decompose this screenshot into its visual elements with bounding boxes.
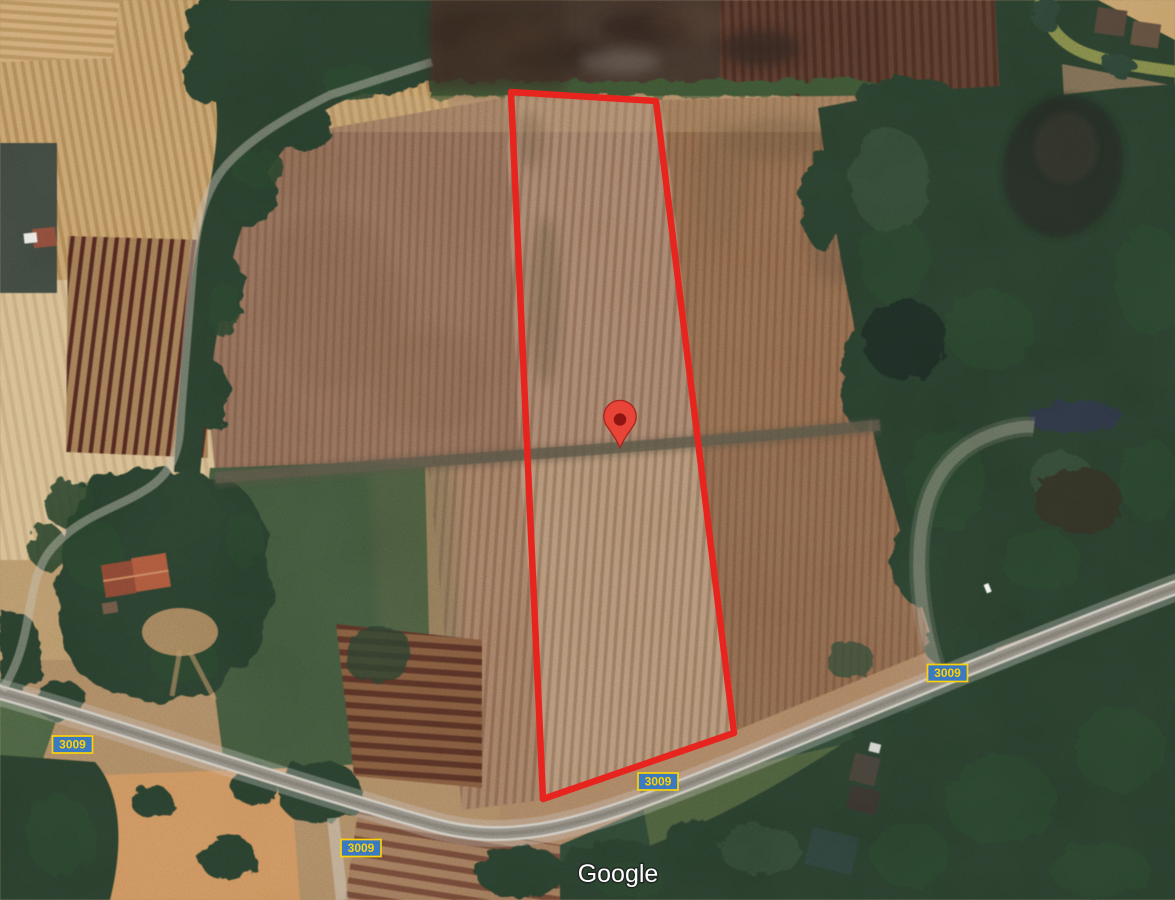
svg-text:Google: Google — [578, 860, 659, 888]
svg-text:3009: 3009 — [645, 775, 672, 789]
svg-text:3009: 3009 — [934, 666, 961, 680]
svg-text:3009: 3009 — [348, 841, 375, 855]
svg-text:3009: 3009 — [59, 738, 86, 752]
